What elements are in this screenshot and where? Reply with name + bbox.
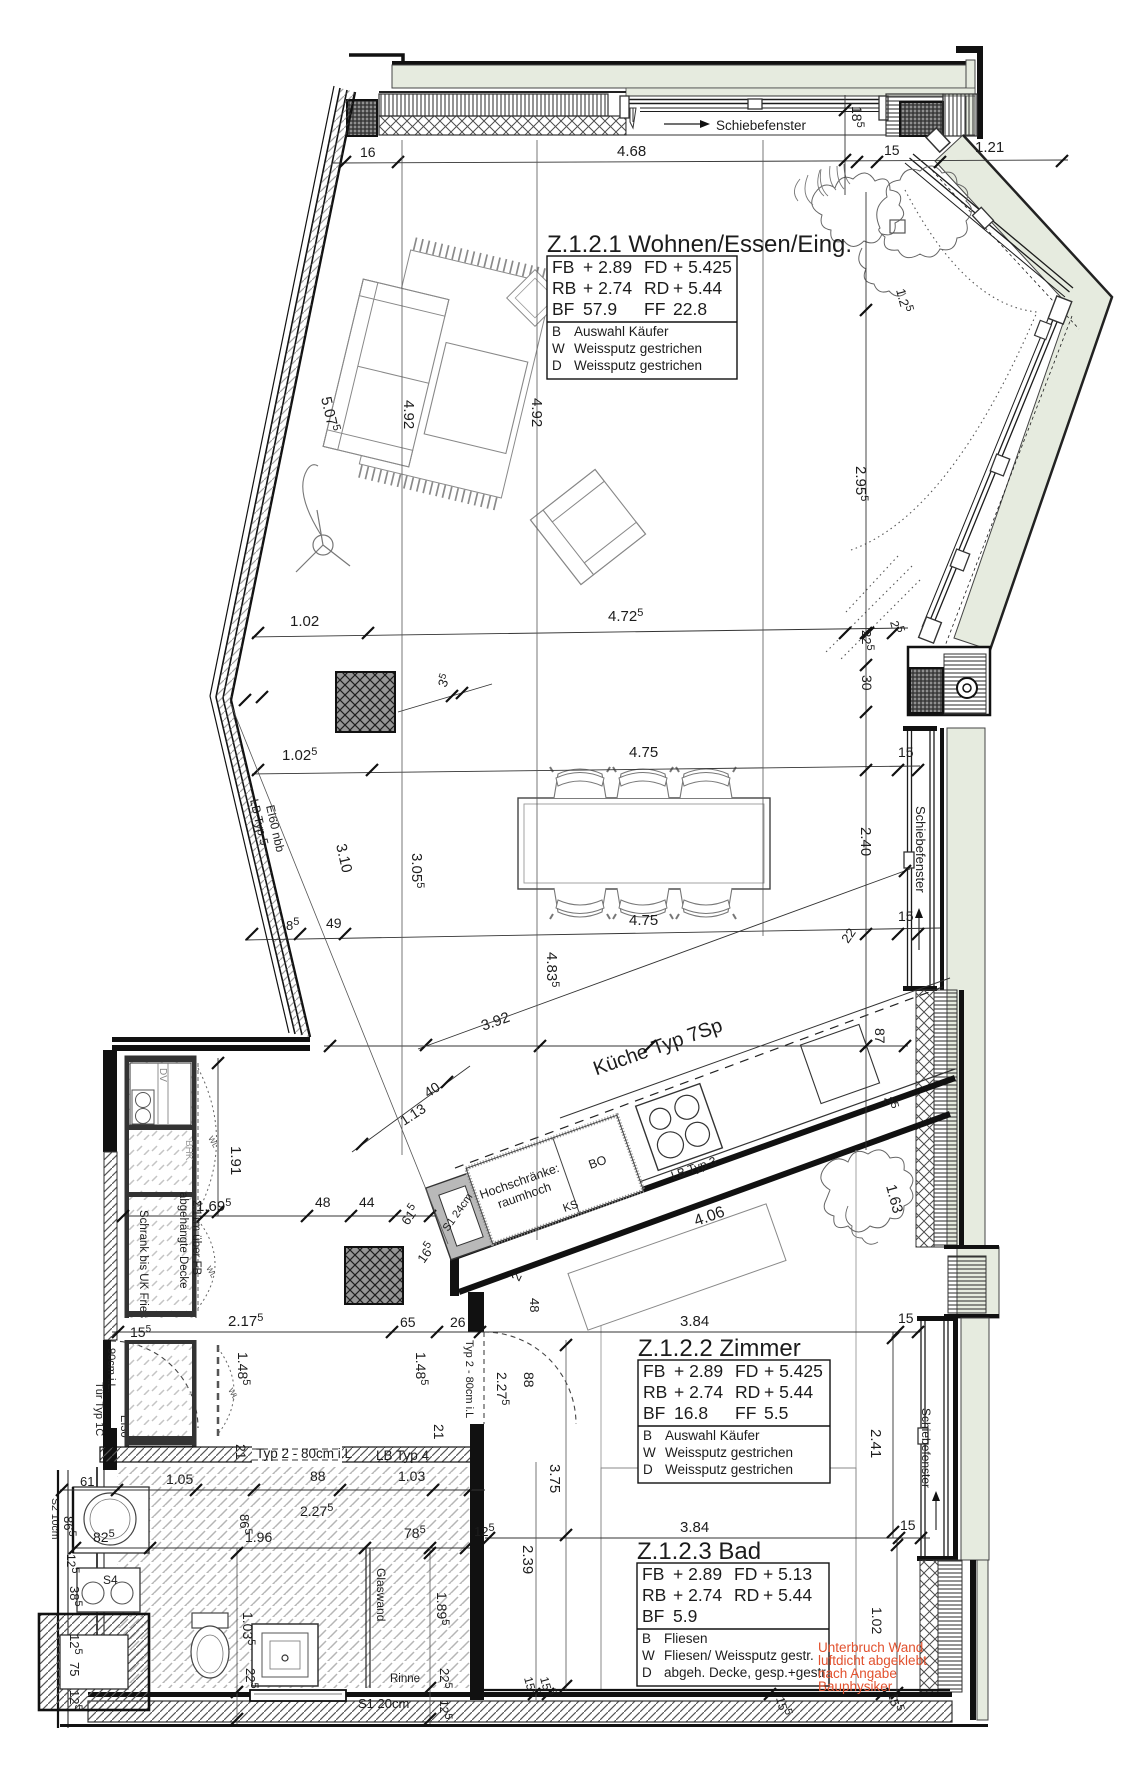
svg-text:1.21: 1.21 bbox=[975, 139, 1004, 156]
svg-text:FB: FB bbox=[552, 257, 574, 277]
svg-text:BF: BF bbox=[643, 1403, 665, 1423]
svg-text:+ 5.44: + 5.44 bbox=[764, 1382, 813, 1402]
svg-text:1.05: 1.05 bbox=[166, 1471, 193, 1487]
svg-text:65: 65 bbox=[400, 1314, 416, 1330]
svg-text:BF: BF bbox=[642, 1606, 664, 1626]
svg-text:16: 16 bbox=[360, 144, 376, 160]
svg-text:Typ 2 - 80cm i.L: Typ 2 - 80cm i.L bbox=[463, 1340, 475, 1418]
svg-text:W: W bbox=[552, 341, 565, 356]
svg-text:Z.1.2.3 Bad: Z.1.2.3 Bad bbox=[637, 1538, 761, 1565]
svg-text:4.92: 4.92 bbox=[400, 400, 417, 429]
svg-text:Weissputz gestrichen: Weissputz gestrichen bbox=[574, 358, 702, 373]
svg-text:2.40: 2.40 bbox=[857, 827, 874, 856]
svg-text:RB: RB bbox=[552, 278, 576, 298]
svg-text:S1 20cm: S1 20cm bbox=[358, 1696, 409, 1711]
svg-text:+ 5.425: + 5.425 bbox=[673, 257, 732, 277]
svg-text:16.8: 16.8 bbox=[674, 1403, 708, 1423]
svg-text:4.75: 4.75 bbox=[629, 744, 658, 761]
svg-text:FD: FD bbox=[644, 257, 667, 277]
svg-text:+ 2.74: + 2.74 bbox=[674, 1382, 723, 1402]
svg-text:Schrank bis UK Fries: Schrank bis UK Fries bbox=[137, 1210, 149, 1318]
svg-text:+ 5.13: + 5.13 bbox=[763, 1564, 812, 1584]
svg-text:88: 88 bbox=[521, 1372, 537, 1388]
svg-text:RD: RD bbox=[735, 1382, 760, 1402]
svg-text:Schiebefenster: Schiebefenster bbox=[919, 1408, 933, 1488]
svg-text:87: 87 bbox=[872, 1028, 888, 1044]
svg-text:+ 5.425: + 5.425 bbox=[764, 1361, 823, 1381]
svg-text:4.75: 4.75 bbox=[629, 912, 658, 929]
svg-text:RB: RB bbox=[642, 1585, 666, 1605]
svg-text:48: 48 bbox=[527, 1298, 542, 1312]
svg-text:D: D bbox=[643, 1462, 653, 1477]
svg-text:D: D bbox=[552, 358, 562, 373]
svg-text:Glaswand: Glaswand bbox=[374, 1568, 388, 1621]
svg-text:+ 2.89: + 2.89 bbox=[674, 1361, 723, 1381]
svg-text:RD: RD bbox=[734, 1585, 759, 1605]
svg-text:Z.1.2.2 Zimmer: Z.1.2.2 Zimmer bbox=[638, 1335, 801, 1362]
svg-text:5.5: 5.5 bbox=[764, 1403, 788, 1423]
svg-text:1.02: 1.02 bbox=[290, 613, 319, 630]
svg-text:FD: FD bbox=[734, 1564, 757, 1584]
svg-text:Fliesen/ Weissputz gestr.: Fliesen/ Weissputz gestr. bbox=[664, 1648, 814, 1663]
svg-text:15: 15 bbox=[884, 142, 900, 158]
svg-text:26: 26 bbox=[450, 1314, 466, 1330]
svg-text:BF: BF bbox=[552, 299, 574, 319]
svg-text:2.41: 2.41 bbox=[867, 1429, 884, 1458]
svg-text:49: 49 bbox=[326, 915, 342, 931]
svg-text:D: D bbox=[642, 1665, 652, 1680]
svg-text:48: 48 bbox=[315, 1194, 331, 1210]
svg-text:FB: FB bbox=[642, 1564, 664, 1584]
svg-text:Z.1.2.1 Wohnen/Essen/Eing.: Z.1.2.1 Wohnen/Essen/Eing. bbox=[547, 231, 852, 258]
svg-text:Bauphysiker: Bauphysiker bbox=[818, 1679, 893, 1694]
svg-text:88: 88 bbox=[310, 1468, 326, 1484]
svg-text:+ 2.74: + 2.74 bbox=[583, 278, 632, 298]
svg-text:57.9: 57.9 bbox=[583, 299, 617, 319]
svg-text:15: 15 bbox=[898, 744, 914, 760]
svg-text:+ 2.89: + 2.89 bbox=[673, 1564, 722, 1584]
svg-text:Schiebefenster: Schiebefenster bbox=[716, 118, 807, 133]
svg-text:abgehängte Decke: abgehängte Decke bbox=[177, 1192, 189, 1289]
svg-text:4.92: 4.92 bbox=[528, 398, 545, 427]
svg-text:+ 5.44: + 5.44 bbox=[763, 1585, 812, 1605]
svg-text:FF: FF bbox=[644, 299, 665, 319]
svg-text:15: 15 bbox=[898, 908, 914, 924]
svg-text:1.02: 1.02 bbox=[869, 1607, 885, 1634]
svg-text:abgeh. Decke, gesp.+gestr.: abgeh. Decke, gesp.+gestr. bbox=[664, 1665, 829, 1680]
svg-text:21: 21 bbox=[431, 1424, 447, 1440]
svg-text:1.03: 1.03 bbox=[398, 1468, 425, 1484]
svg-text:DV: DV bbox=[157, 1068, 168, 1082]
svg-text:LB Typ 4: LB Typ 4 bbox=[376, 1448, 430, 1463]
svg-text:Tür Typ 1C: Tür Typ 1C bbox=[93, 1382, 105, 1436]
svg-text:FF: FF bbox=[735, 1403, 756, 1423]
svg-text:S2 10cm: S2 10cm bbox=[49, 1498, 61, 1540]
svg-text:+ 5.44: + 5.44 bbox=[673, 278, 722, 298]
svg-text:1.91: 1.91 bbox=[227, 1146, 244, 1175]
svg-text:90cm i.L.: 90cm i.L. bbox=[105, 1348, 117, 1393]
svg-text:S4: S4 bbox=[103, 1573, 118, 1587]
svg-text:21: 21 bbox=[233, 1444, 249, 1460]
svg-text:Weissputz gestrichen: Weissputz gestrichen bbox=[665, 1462, 793, 1477]
svg-text:3.75: 3.75 bbox=[546, 1464, 563, 1493]
svg-text:61: 61 bbox=[80, 1474, 94, 1489]
svg-text:5.9: 5.9 bbox=[673, 1606, 697, 1626]
svg-text:Weissputz gestrichen: Weissputz gestrichen bbox=[574, 341, 702, 356]
svg-text:W: W bbox=[642, 1648, 655, 1663]
svg-text:4.68: 4.68 bbox=[617, 143, 646, 160]
svg-text:Fliesen: Fliesen bbox=[664, 1631, 708, 1646]
svg-text:30: 30 bbox=[859, 675, 875, 691]
svg-text:+ 2.89: + 2.89 bbox=[583, 257, 632, 277]
svg-text:Schiebefenster: Schiebefenster bbox=[913, 806, 928, 893]
svg-text:15: 15 bbox=[900, 1517, 916, 1533]
svg-text:Rinne: Rinne bbox=[390, 1673, 420, 1685]
svg-text:BHK: BHK bbox=[183, 1140, 194, 1161]
svg-text:Auswahl Käufer: Auswahl Käufer bbox=[574, 324, 669, 339]
svg-text:FB: FB bbox=[643, 1361, 665, 1381]
svg-text:Auswahl Käufer: Auswahl Käufer bbox=[665, 1428, 760, 1443]
svg-text:+ 2.74: + 2.74 bbox=[673, 1585, 722, 1605]
svg-text:RD: RD bbox=[644, 278, 669, 298]
svg-text:3.84: 3.84 bbox=[680, 1313, 709, 1330]
svg-text:44: 44 bbox=[359, 1194, 375, 1210]
svg-text:W: W bbox=[643, 1445, 656, 1460]
svg-text:RB: RB bbox=[643, 1382, 667, 1402]
svg-text:15: 15 bbox=[898, 1310, 914, 1326]
svg-text:B: B bbox=[642, 1631, 651, 1646]
svg-text:22.8: 22.8 bbox=[673, 299, 707, 319]
svg-text:Weissputz gestrichen: Weissputz gestrichen bbox=[665, 1445, 793, 1460]
svg-text:2.39: 2.39 bbox=[519, 1545, 536, 1574]
svg-text:Typ 2 - 80cm i.L: Typ 2 - 80cm i.L bbox=[256, 1446, 353, 1461]
svg-text:FD: FD bbox=[735, 1361, 758, 1381]
svg-text:B: B bbox=[643, 1428, 652, 1443]
svg-text:B: B bbox=[552, 324, 561, 339]
svg-text:75: 75 bbox=[67, 1662, 82, 1676]
svg-text:3.84: 3.84 bbox=[680, 1519, 709, 1536]
